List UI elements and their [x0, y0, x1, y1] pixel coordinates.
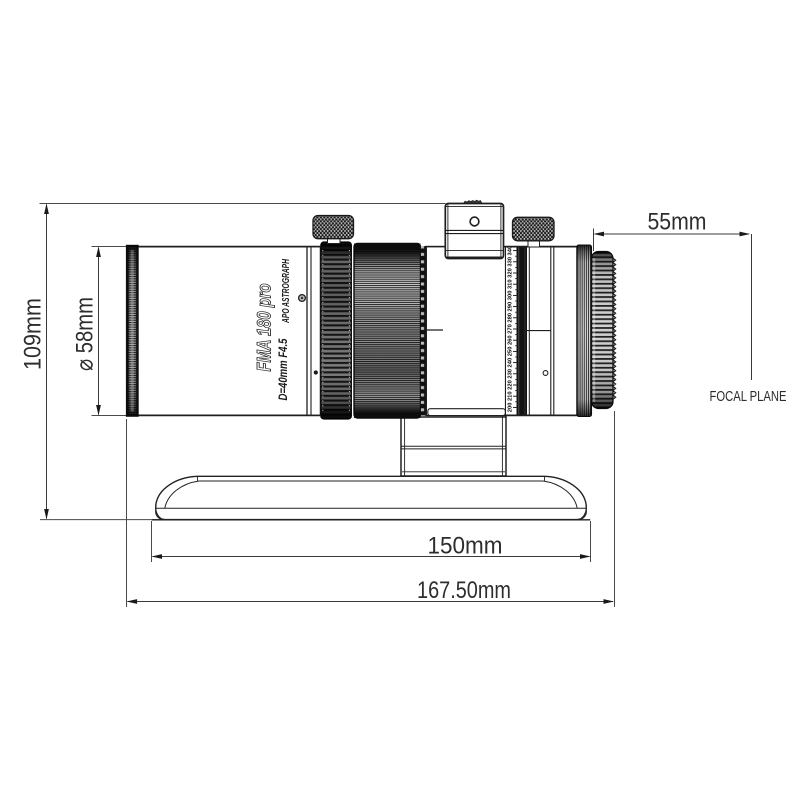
svg-text:167.50mm: 167.50mm [417, 577, 511, 604]
svg-text:270: 270 [508, 324, 514, 334]
svg-text:230: 230 [508, 369, 514, 379]
svg-text:290: 290 [508, 302, 514, 312]
svg-text:240: 240 [508, 358, 514, 368]
svg-text:260: 260 [508, 335, 514, 345]
svg-text:280: 280 [508, 313, 514, 323]
svg-text:FMA 180 pro: FMA 180 pro [254, 283, 276, 371]
svg-text:210: 210 [508, 391, 514, 401]
svg-text:220: 220 [508, 380, 514, 390]
svg-text:300: 300 [508, 291, 514, 301]
svg-text:⌀ 58mm: ⌀ 58mm [72, 297, 99, 371]
svg-text:APO ASTROGRAPH: APO ASTROGRAPH [281, 258, 292, 323]
svg-text:320: 320 [508, 268, 514, 278]
svg-text:200: 200 [508, 403, 514, 413]
svg-text:330: 330 [508, 257, 514, 267]
svg-text:310: 310 [508, 279, 514, 289]
svg-text:D=40mm F4.5: D=40mm F4.5 [278, 338, 290, 400]
svg-text:55mm: 55mm [648, 209, 707, 236]
svg-text:109mm: 109mm [20, 298, 47, 370]
svg-text:250: 250 [508, 347, 514, 357]
svg-text:150mm: 150mm [428, 533, 503, 560]
svg-text:FOCAL PLANE: FOCAL PLANE [710, 388, 787, 405]
